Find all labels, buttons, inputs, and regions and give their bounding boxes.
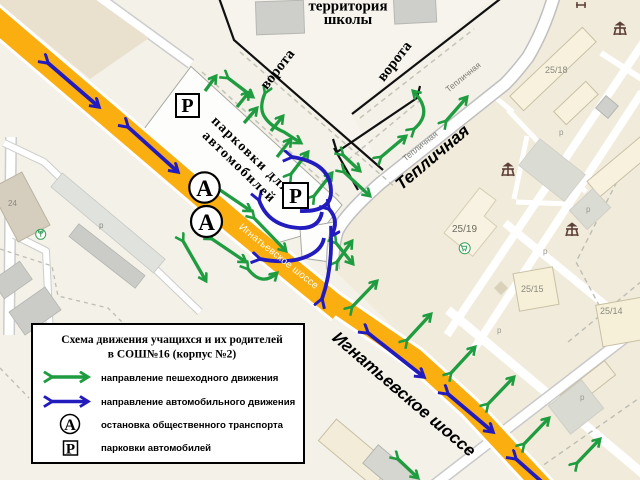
svg-text:25/19: 25/19 (452, 224, 477, 235)
svg-text:25/14: 25/14 (600, 306, 623, 316)
svg-text:24: 24 (8, 199, 17, 208)
svg-text:p: p (580, 393, 585, 402)
svg-text:остановка общественного трансп: остановка общественного транспорта (101, 420, 284, 431)
svg-text:А: А (198, 210, 215, 235)
svg-text:Схема движения учащихся и их р: Схема движения учащихся и их родителей (61, 334, 283, 346)
svg-text:Р: Р (289, 184, 302, 208)
svg-text:направление автомобильного дви: направление автомобильного движения (101, 397, 295, 408)
svg-text:в СОШ№16 (корпус №2): в СОШ№16 (корпус №2) (108, 349, 237, 361)
svg-text:Р: Р (66, 442, 75, 458)
svg-text:25/18: 25/18 (545, 65, 568, 75)
svg-text:направление пешеходного движен: направление пешеходного движения (101, 373, 278, 384)
svg-text:p: p (543, 247, 548, 256)
svg-text:А: А (64, 417, 76, 434)
svg-text:p: p (559, 128, 564, 137)
svg-text:А: А (196, 176, 213, 201)
svg-text:школы: школы (324, 12, 373, 28)
svg-text:25/15: 25/15 (521, 284, 544, 294)
svg-text:p: p (497, 326, 502, 335)
svg-text:Р: Р (181, 95, 193, 117)
svg-text:p: p (99, 221, 104, 230)
svg-text:p: p (586, 205, 591, 214)
svg-text:парковки автомобилей: парковки автомобилей (101, 443, 211, 454)
